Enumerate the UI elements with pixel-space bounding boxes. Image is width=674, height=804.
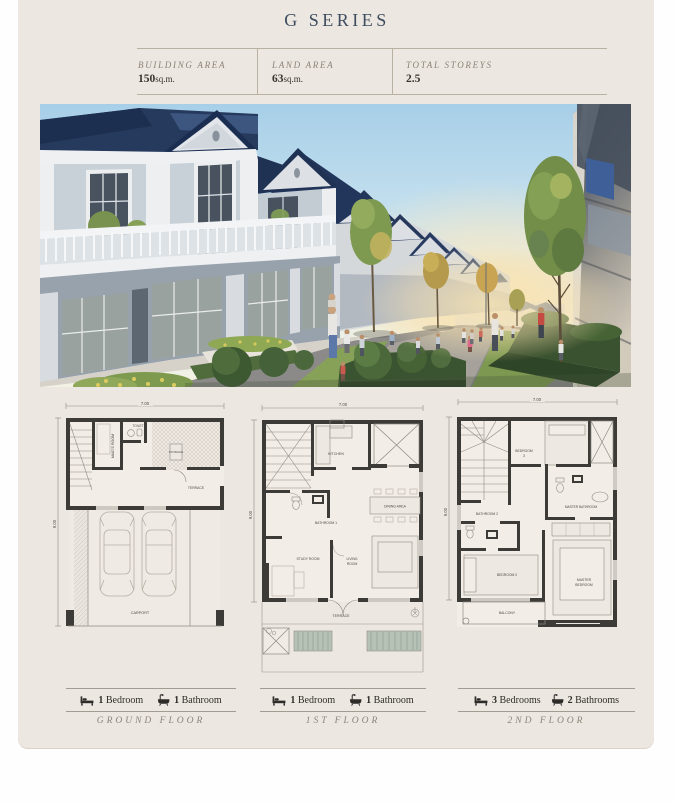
svg-text:BATHROOM 2: BATHROOM 2 xyxy=(476,512,498,516)
svg-text:TOILET: TOILET xyxy=(132,424,143,428)
svg-text:ROOM: ROOM xyxy=(347,562,358,566)
svg-text:BALCONY: BALCONY xyxy=(499,611,516,615)
svg-text:STUDY ROOM: STUDY ROOM xyxy=(297,557,320,561)
svg-text:MASTER BATHROOM: MASTER BATHROOM xyxy=(565,505,598,509)
svg-text:7.00: 7.00 xyxy=(141,401,150,406)
svg-text:LIVING: LIVING xyxy=(346,557,357,561)
svg-text:9.00: 9.00 xyxy=(52,519,57,528)
svg-text:BEDROOM: BEDROOM xyxy=(575,583,593,587)
svg-text:KITCHEN: KITCHEN xyxy=(328,452,344,456)
svg-text:CARPORT: CARPORT xyxy=(131,611,150,615)
svg-text:BATHROOM 1: BATHROOM 1 xyxy=(315,521,337,525)
svg-text:BEDROOM 2: BEDROOM 2 xyxy=(497,573,517,577)
svg-text:TERRACE: TERRACE xyxy=(332,614,350,618)
svg-text:BEDROOM: BEDROOM xyxy=(515,449,533,453)
svg-text:MASTER: MASTER xyxy=(577,578,592,582)
svg-text:DINING AREA: DINING AREA xyxy=(384,505,407,509)
svg-text:9.00: 9.00 xyxy=(443,507,448,516)
svg-text:7.00: 7.00 xyxy=(533,397,542,402)
svg-text:7.00: 7.00 xyxy=(339,402,348,407)
svg-text:9.00: 9.00 xyxy=(248,510,253,519)
svg-text:MAID'S ROOM: MAID'S ROOM xyxy=(111,434,115,458)
svg-text:3: 3 xyxy=(523,454,525,458)
svg-text:STORAGE: STORAGE xyxy=(169,450,184,454)
svg-text:TERRACE: TERRACE xyxy=(188,486,205,490)
